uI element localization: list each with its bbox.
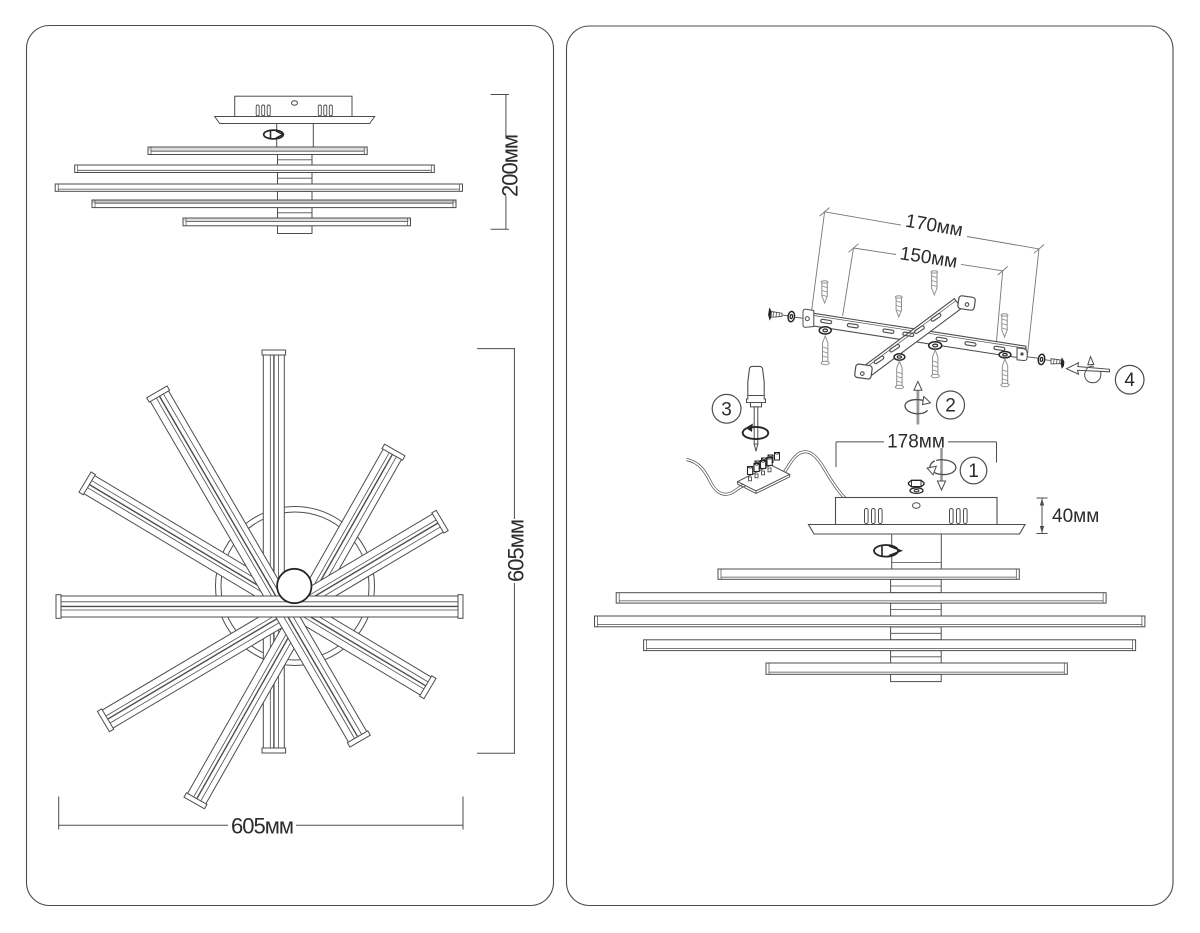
svg-text:605мм: 605мм	[503, 520, 528, 582]
svg-text:4: 4	[1124, 370, 1135, 391]
svg-text:3: 3	[721, 399, 732, 420]
svg-text:178мм: 178мм	[887, 432, 945, 453]
svg-text:2: 2	[945, 396, 956, 417]
svg-text:40мм: 40мм	[1052, 506, 1099, 527]
svg-text:1: 1	[968, 461, 979, 482]
svg-text:200мм: 200мм	[497, 135, 522, 197]
svg-text:605мм: 605мм	[231, 814, 293, 839]
